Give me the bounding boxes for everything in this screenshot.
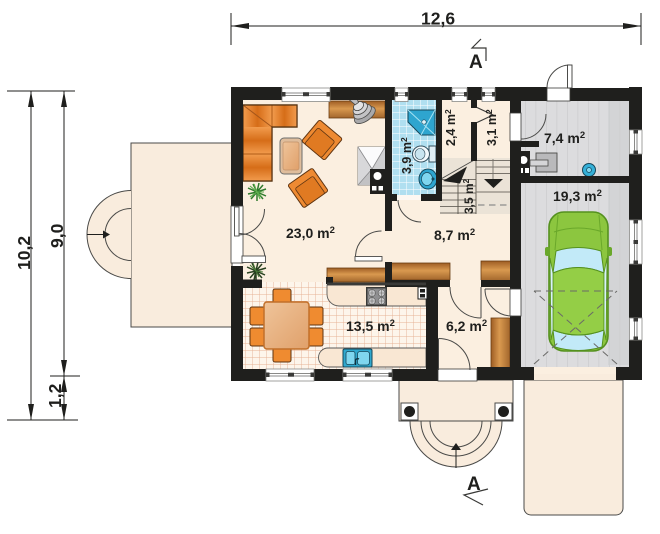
svg-text:10,2: 10,2	[14, 236, 34, 270]
svg-text:12,6: 12,6	[421, 9, 455, 29]
svg-text:3,5 m2: 3,5 m2	[462, 178, 476, 214]
svg-text:7,4 m2: 7,4 m2	[544, 130, 585, 146]
svg-text:6,2 m2: 6,2 m2	[446, 318, 487, 334]
svg-text:1,2: 1,2	[45, 383, 65, 408]
svg-text:3,1 m2: 3,1 m2	[484, 109, 499, 146]
svg-text:23,0 m2: 23,0 m2	[286, 225, 335, 241]
svg-text:3,9 m2: 3,9 m2	[399, 137, 414, 174]
svg-text:8,7 m2: 8,7 m2	[434, 227, 475, 243]
svg-text:19,3 m2: 19,3 m2	[553, 188, 602, 204]
svg-text:A: A	[469, 52, 483, 73]
svg-text:2,4 m2: 2,4 m2	[443, 109, 458, 146]
svg-text:13,5 m2: 13,5 m2	[346, 318, 395, 334]
svg-text:9,0: 9,0	[47, 223, 67, 248]
